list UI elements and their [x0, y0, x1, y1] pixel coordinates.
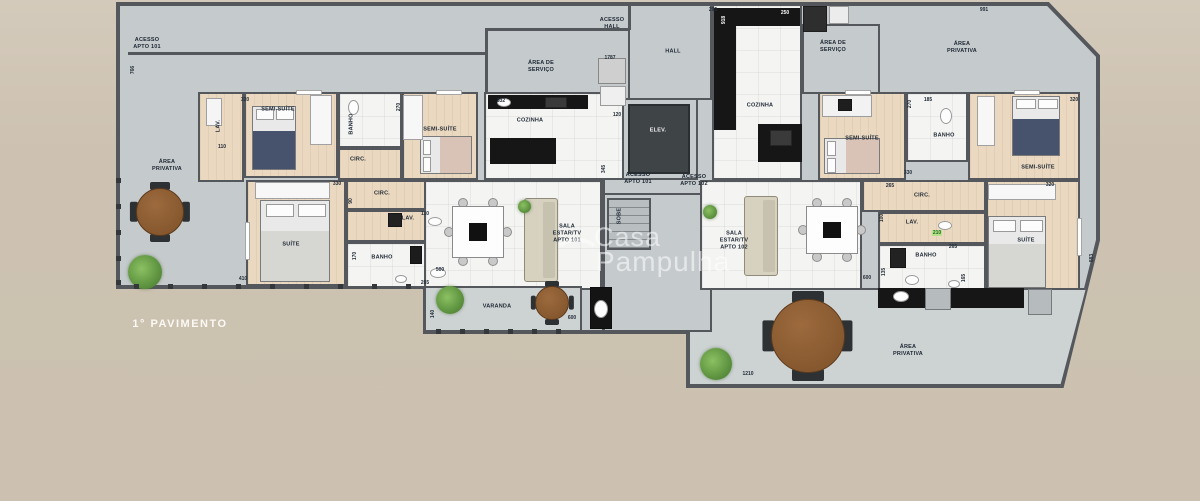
dimension-766-0: 766 [130, 66, 136, 74]
label-banho-1: BANHO [348, 113, 355, 134]
bed-blanket [261, 231, 329, 281]
fence-post [116, 230, 121, 235]
dimension-100-24: 100 [879, 214, 885, 222]
label-acesso-apto-102: ACESSO APTO 102 [680, 174, 707, 188]
label-hall: HALL [665, 48, 680, 55]
watermark-line2: Pampulha [596, 246, 730, 278]
fence-post [304, 284, 309, 289]
fixture-box-21 [845, 90, 871, 95]
fence-post [484, 329, 489, 334]
fixture-box-9 [255, 182, 330, 199]
dimension-250-5: 250 [781, 10, 789, 16]
fixture-oval-5 [905, 275, 919, 285]
fence-post [508, 329, 513, 334]
bed-pillow [423, 140, 431, 156]
label-semi-suite-2: SEMI-SUÍTE [423, 126, 456, 133]
table-centerpiece [469, 223, 487, 241]
fixture-box-22 [1014, 90, 1040, 95]
plant-3 [703, 205, 717, 219]
dimension-330-13: 330 [333, 181, 341, 187]
floor-title: 1° PAVIMENTO [132, 317, 227, 331]
wall-segment-3 [628, 4, 631, 30]
dimension-110-12: 110 [218, 144, 226, 150]
dimension-185-33: 185 [924, 97, 932, 103]
fence-post [202, 284, 207, 289]
bed-blanket [440, 137, 471, 173]
fixture-oval-8 [893, 291, 909, 302]
dimension-170-16: 170 [352, 252, 358, 260]
label-area-privativa-bottom-right: ÁREA PRIVATIVA [893, 344, 923, 358]
label-semi-suite-3: SEMI-SUÍTE [845, 135, 878, 142]
dimension-330-31: 330 [904, 170, 912, 176]
label-semi-suite-1: SEMI-SUÍTE [261, 106, 294, 113]
fixture-oval-10 [594, 300, 608, 318]
elevator-cab [628, 104, 690, 174]
label-area-servico-102: ÁREA DE SERVIÇO [820, 40, 846, 54]
fence-post [116, 280, 121, 285]
fixture-box-0 [598, 58, 626, 84]
label-varanda: VARANDA [483, 303, 512, 310]
dimension-270-11: 270 [396, 103, 402, 111]
dimension-410-18: 410 [239, 276, 247, 282]
label-cozinha-101: COZINHA [517, 117, 543, 124]
dimension-265-23: 265 [886, 183, 894, 189]
fixture-oval-6 [948, 280, 960, 288]
label-area-privativa-left: ÁREA PRIVATIVA [152, 159, 182, 173]
fence-post [556, 329, 561, 334]
label-circ-1: CIRC. [350, 156, 366, 163]
fixture-box-24 [1077, 218, 1082, 256]
dimension-90-14: 90 [348, 198, 354, 204]
plant-2 [700, 348, 732, 380]
fence-post [134, 284, 139, 289]
bed-pillow [266, 204, 294, 217]
bed-0 [252, 106, 296, 170]
fence-post [436, 329, 441, 334]
fence-post [116, 256, 121, 261]
label-suite-102: SUÍTE [1017, 237, 1034, 244]
bed-blanket [989, 244, 1045, 287]
fixture-box-7 [310, 95, 332, 145]
fence-post [236, 284, 241, 289]
label-acesso-apto-101-top: ACESSO APTO 101 [133, 37, 160, 51]
bed-pillow [298, 204, 326, 217]
dimension-918-6: 918 [721, 16, 727, 24]
fixture-box-1 [600, 86, 626, 106]
dimension-295-4: 295 [709, 7, 717, 13]
fixture-oval-4 [940, 108, 952, 124]
dimension-165-29: 165 [961, 274, 967, 282]
label-lav-101a: LAV. [215, 120, 222, 132]
kitchen-counter-3 [736, 8, 800, 26]
dimension-210-25: 210 [932, 230, 942, 236]
fixture-box-16 [890, 248, 906, 268]
fence-post [270, 284, 275, 289]
bed-pillow [827, 141, 835, 156]
fixture-box-3 [829, 6, 849, 24]
label-elevador: ELEV. [650, 127, 666, 134]
fixture-box-13 [838, 99, 852, 111]
dimension-1787-7: 1787 [604, 55, 615, 61]
label-lav-102: LAV. [906, 219, 918, 226]
fixture-box-23 [245, 222, 250, 260]
bed-3 [1012, 96, 1060, 156]
fixture-box-18 [770, 130, 792, 146]
label-semi-suite-4: SEMI-SUÍTE [1021, 164, 1054, 171]
bed-pillow [1038, 99, 1057, 109]
fence-post [168, 284, 173, 289]
fixture-box-15 [410, 246, 422, 264]
bed-2 [824, 138, 880, 174]
label-suite-101: SUÍTE [282, 241, 299, 248]
kitchen-counter-1 [490, 138, 556, 164]
fixture-box-14 [388, 213, 402, 227]
floorplan-canvas: 1° PAVIMENTO Casa Pampulha ACESSO APTO 1… [0, 0, 1200, 501]
dimension-110-15: 110 [421, 211, 429, 217]
fixture-box-5 [1028, 289, 1052, 315]
round-table-0 [136, 188, 184, 236]
label-cozinha-102: COZINHA [747, 102, 773, 109]
fence-post [338, 284, 343, 289]
dimension-600-28: 600 [863, 275, 871, 281]
dimension-120-9: 120 [613, 112, 621, 118]
dimension-320-10: 320 [241, 97, 249, 103]
fixture-box-19 [296, 90, 322, 95]
fence-post [532, 329, 537, 334]
sofa-1 [744, 196, 778, 276]
table-centerpiece [823, 222, 841, 239]
room-banho-102a [906, 92, 968, 162]
fixture-box-10 [977, 96, 995, 146]
label-area-servico-101: ÁREA DE SERVIÇO [528, 60, 554, 74]
label-lav-101b: LAV. [402, 215, 414, 222]
round-table-chair [568, 296, 573, 310]
dimension-135-26: 135 [881, 268, 887, 276]
bed-1 [420, 136, 472, 174]
fixture-box-2 [803, 6, 827, 32]
fixture-oval-3 [428, 217, 442, 226]
dimension-991-1: 991 [980, 7, 988, 13]
dining-table-0 [452, 206, 504, 258]
bed-blanket [1013, 119, 1059, 155]
label-banho-102b: BANHO [915, 252, 936, 259]
plant-4 [518, 200, 531, 213]
kitchen-counter-2 [714, 8, 736, 130]
bed-pillow [1020, 220, 1043, 232]
round-table-2 [771, 299, 845, 373]
floorplan-page: { "meta": { "title": "1° PAVIMENTO", "wa… [0, 0, 1200, 501]
fixture-oval-7 [938, 221, 952, 230]
bed-blanket [846, 139, 879, 173]
fence-post [116, 178, 121, 183]
fence-post [406, 284, 411, 289]
fixture-box-4 [925, 288, 951, 310]
label-acesso-hall: ACESSO HALL [600, 17, 624, 31]
bed-pillow [423, 157, 431, 173]
dimension-332-8: 332 [497, 98, 505, 104]
fixture-box-20 [436, 90, 462, 95]
dimension-320-34: 320 [1070, 97, 1078, 103]
bed-pillow [827, 158, 835, 173]
fence-post [116, 204, 121, 209]
plant-1 [436, 286, 464, 314]
room-lav-102 [878, 212, 986, 244]
wall-segment-2 [485, 28, 488, 94]
fixture-box-8 [403, 95, 423, 140]
dimension-265-27: 265 [949, 244, 957, 250]
fixture-box-17 [545, 97, 567, 108]
label-circ-2: CIRC. [374, 190, 390, 197]
dimension-500-19: 500 [436, 267, 444, 273]
label-banho-102a: BANHO [933, 132, 954, 139]
bed-blanket [253, 131, 295, 169]
bed-pillow [1016, 99, 1035, 109]
dimension-320-30: 320 [1046, 182, 1054, 188]
label-banho-101: BANHO [371, 254, 392, 261]
dimension-345-20: 345 [601, 165, 607, 173]
round-table-chair [545, 319, 559, 324]
dining-table-1 [806, 206, 858, 254]
dimension-265-17: 265 [421, 280, 429, 286]
fixture-oval-2 [395, 275, 407, 283]
label-circ-102: CIRC. [914, 192, 930, 199]
bed-pillow [993, 220, 1016, 232]
dimension-883-2: 883 [1089, 254, 1095, 262]
dimension-270-32: 270 [907, 100, 913, 108]
label-acesso-apto-101: ACESSO APTO 101 [624, 172, 651, 186]
room-area-servico-102 [802, 24, 880, 94]
dimension-1210-3: 1210 [742, 371, 753, 377]
bed-5 [988, 216, 1046, 288]
dimension-600-22: 600 [568, 315, 576, 321]
round-table-1 [535, 286, 569, 320]
label-area-privativa-top-right: ÁREA PRIVATIVA [947, 41, 977, 55]
wall-segment-0 [128, 52, 486, 55]
fence-post [372, 284, 377, 289]
dimension-140-21: 140 [430, 310, 436, 318]
fence-post [460, 329, 465, 334]
room-circ-1 [338, 148, 402, 180]
